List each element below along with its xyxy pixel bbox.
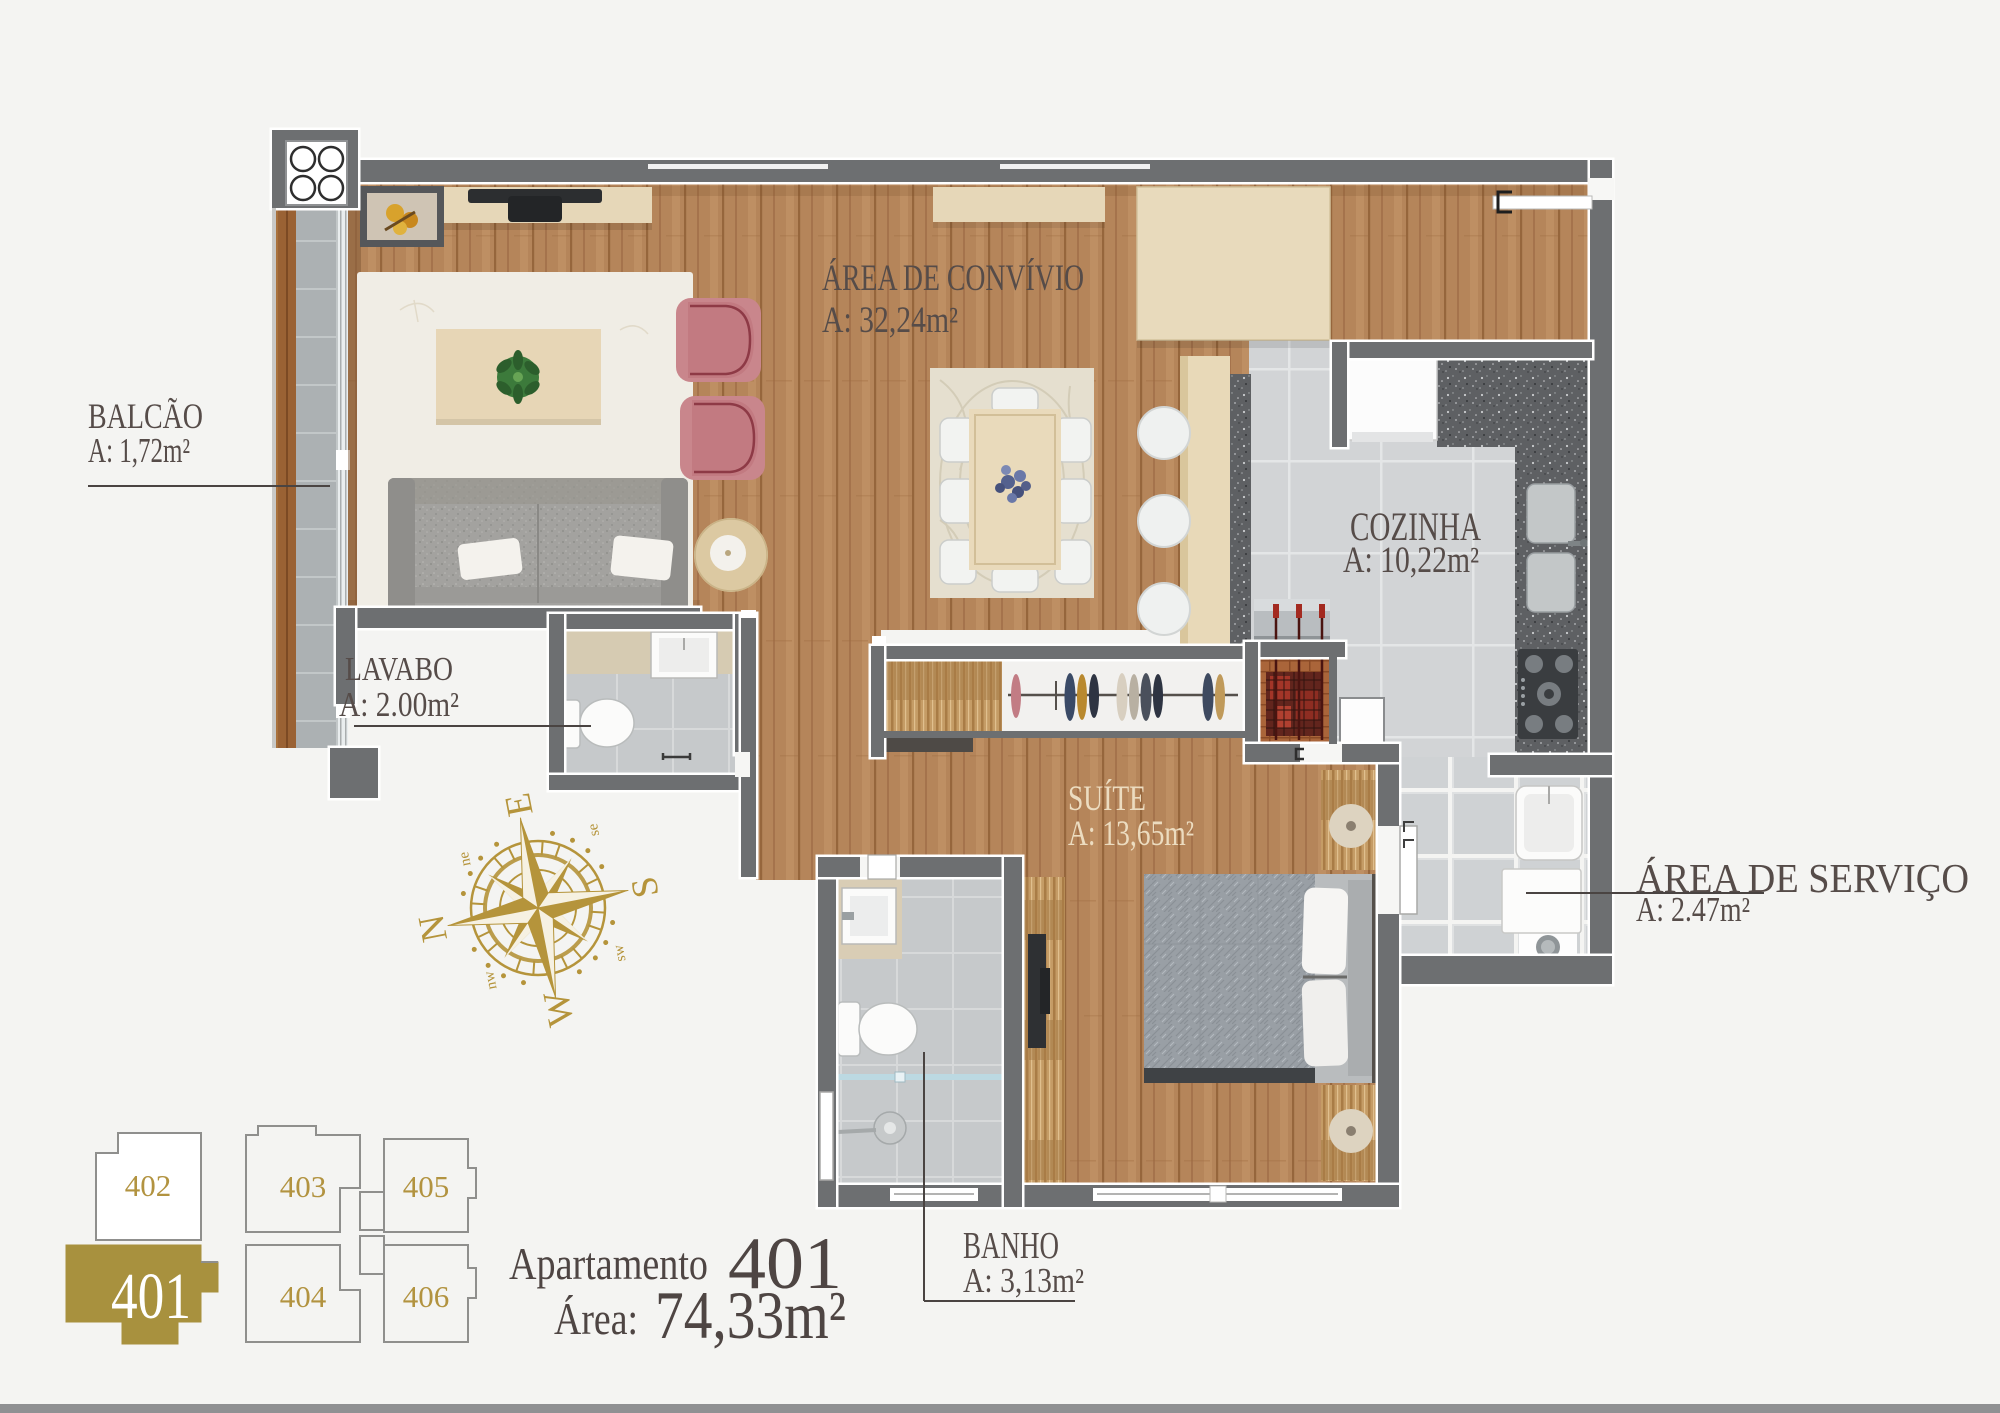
svg-text:403: 403 [280, 1169, 327, 1204]
svg-text:ÁREA DE CONVÍVIO: ÁREA DE CONVÍVIO [822, 257, 1084, 299]
svg-text:A: 2.47m²: A: 2.47m² [1636, 890, 1750, 929]
svg-text:A: 1,72m²: A: 1,72m² [88, 431, 190, 470]
svg-text:LAVABO: LAVABO [345, 651, 453, 688]
svg-text:404: 404 [280, 1279, 327, 1314]
svg-text:A: 13,65m²: A: 13,65m² [1068, 813, 1194, 853]
svg-text:A: 32,24m²: A: 32,24m² [822, 300, 958, 341]
svg-text:406: 406 [403, 1279, 450, 1314]
svg-text:401: 401 [111, 1260, 191, 1333]
svg-text:sw: sw [611, 943, 630, 963]
svg-text:74,33m²: 74,33m² [655, 1277, 846, 1353]
svg-text:Área:: Área: [554, 1293, 638, 1344]
svg-text:405: 405 [403, 1169, 450, 1204]
svg-text:BALCÃO: BALCÃO [88, 396, 203, 436]
svg-text:A: 3,13m²: A: 3,13m² [963, 1261, 1084, 1300]
svg-text:A: 2.00m²: A: 2.00m² [339, 685, 459, 724]
svg-text:402: 402 [125, 1168, 172, 1203]
svg-text:A: 10,22m²: A: 10,22m² [1343, 540, 1479, 581]
svg-text:SUÍTE: SUÍTE [1068, 778, 1146, 818]
